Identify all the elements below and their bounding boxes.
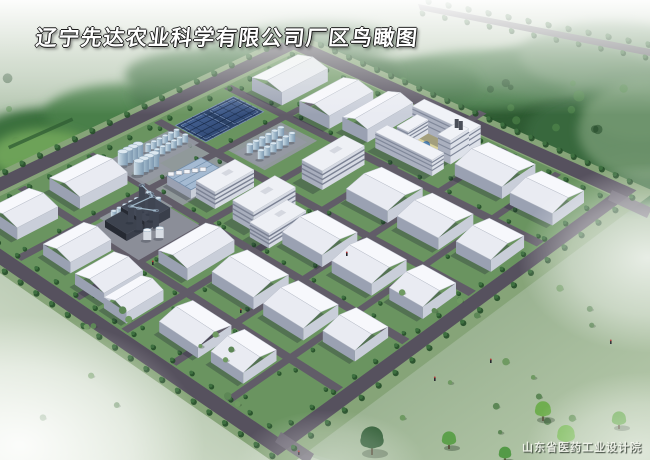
tree-crown (265, 249, 268, 252)
bush (457, 298, 463, 304)
tree-crown (293, 368, 296, 371)
tree-crown (511, 282, 515, 286)
bush (223, 357, 228, 362)
tree-crown (500, 267, 504, 271)
tree-crown (352, 374, 356, 378)
tree-crown (331, 389, 335, 393)
tree-crown (158, 126, 161, 129)
truck (192, 168, 198, 172)
tank-top (270, 142, 276, 145)
tank-top (143, 228, 151, 231)
tree-crown (151, 344, 155, 348)
tree-crown (486, 116, 490, 120)
tree-crown (312, 278, 315, 281)
tree-crown (477, 307, 481, 311)
tree-crown (247, 410, 251, 414)
tank-top (265, 133, 271, 136)
gate-pillar (459, 121, 463, 130)
tree-crown (443, 332, 447, 336)
tree-crown (327, 211, 330, 214)
tank-top (174, 129, 180, 131)
mist-top (0, 0, 650, 115)
tank-top (278, 126, 284, 129)
tree-crown (310, 405, 314, 409)
tank-body (153, 211, 159, 229)
tank-top (276, 139, 282, 142)
tree-crown (460, 319, 464, 323)
tree-crown (17, 279, 21, 283)
person (490, 359, 492, 361)
tree-crown (375, 382, 379, 386)
tank-top (289, 132, 295, 135)
tank-top (118, 149, 128, 153)
bush (448, 380, 452, 384)
tank-top (171, 139, 177, 141)
tree-crown (238, 431, 242, 435)
bush (536, 393, 542, 399)
tree-crown (209, 384, 213, 388)
tree-crown (392, 370, 396, 374)
tank-body (128, 206, 134, 222)
tree-crown (147, 125, 151, 129)
person (240, 309, 242, 311)
tree-crown (15, 253, 19, 257)
tree-crown (49, 301, 53, 305)
person (240, 310, 242, 313)
tank-top (162, 134, 168, 136)
tree-crown (436, 313, 440, 317)
tree-crown (426, 345, 430, 349)
tree-crown (92, 305, 96, 309)
tank-top (145, 143, 151, 145)
bush (502, 358, 509, 365)
gate-pillar (455, 119, 459, 128)
tree-crown (127, 135, 131, 139)
bush (474, 312, 480, 318)
tank-top (134, 159, 144, 163)
tree-crown (542, 141, 546, 145)
tank-top (154, 148, 160, 150)
tank-top (258, 149, 264, 152)
tree-crown (37, 152, 41, 156)
tree-crown (202, 287, 205, 290)
tree-crown (72, 136, 76, 140)
person (152, 261, 154, 263)
truck (200, 167, 206, 171)
tree-crown (161, 189, 164, 192)
tree-crown (222, 420, 226, 424)
tree-crown (27, 184, 31, 188)
tree-crown (456, 291, 459, 294)
tree-crown (556, 147, 560, 151)
tree-crown (54, 279, 58, 283)
tree-crown (194, 156, 197, 159)
tree-crown (167, 115, 171, 119)
tank-top (160, 145, 166, 147)
tree-crown (19, 161, 23, 165)
bush (119, 306, 127, 314)
tank-top (272, 129, 278, 132)
tree-crown (189, 371, 193, 375)
tree-crown (192, 207, 195, 210)
designer-watermark: 山东省医药工业设计院 (522, 439, 642, 455)
tank-top (157, 137, 163, 139)
tree-crown (222, 225, 225, 228)
page-title: 辽宁先达农业科学有限公司厂区鸟瞰图 (34, 22, 420, 52)
tree-crown (324, 387, 327, 390)
tree-crown (394, 343, 398, 347)
person (434, 377, 436, 379)
tank-top (139, 184, 145, 187)
tree-crown (131, 331, 135, 335)
canopy-texture (512, 116, 520, 124)
tank-top (253, 140, 259, 143)
bush (399, 289, 405, 295)
tree-crown (107, 119, 111, 123)
tree-crown (372, 313, 375, 316)
bush (400, 415, 406, 421)
tree-crown (277, 371, 280, 374)
tree-crown (402, 331, 405, 334)
tree-crown (217, 221, 220, 224)
tree-crown (447, 189, 450, 192)
tree-crown (373, 359, 377, 363)
tree-crown (445, 254, 448, 257)
tree-crown (89, 128, 93, 132)
tank-top (259, 136, 265, 139)
tree-crown (172, 290, 175, 293)
person (434, 378, 436, 381)
tree-crown (409, 357, 413, 361)
tree-crown (494, 294, 498, 298)
bush (212, 332, 218, 338)
person (490, 360, 492, 363)
tank-top (151, 140, 157, 142)
tree-crown (546, 169, 550, 173)
tank-top (111, 210, 117, 212)
bush (531, 375, 536, 380)
bush (235, 401, 241, 407)
shadow (134, 230, 142, 233)
tank-top (165, 142, 171, 144)
person (346, 252, 348, 254)
tree-crown (126, 192, 129, 195)
tree-crown (378, 301, 381, 304)
tree-crown (73, 292, 77, 296)
tree-crown (233, 329, 236, 332)
tree-crown (54, 144, 58, 148)
tree-crown (504, 451, 511, 458)
tree-shadow (444, 445, 460, 451)
bush (493, 403, 500, 410)
tree-crown (563, 177, 567, 181)
tree-crown (528, 135, 532, 139)
tree-crown (57, 229, 60, 232)
tree-crown (47, 174, 51, 178)
tree-crown (206, 409, 210, 413)
tank-top (168, 132, 174, 134)
tree-crown (328, 130, 331, 133)
tree-crown (228, 138, 231, 141)
tree-crown (154, 257, 157, 260)
tree-crown (107, 145, 111, 149)
tank-top (264, 145, 270, 148)
tree-crown (500, 122, 504, 126)
rendering-canvas (0, 0, 650, 460)
tank-top (283, 135, 289, 138)
tank-top (156, 226, 164, 229)
bush (125, 316, 132, 323)
truck (176, 171, 182, 175)
tree-crown (217, 159, 220, 162)
tank-top (182, 133, 188, 135)
tree-crown (33, 290, 37, 294)
birdseye-rendering: 辽宁先达农业科学有限公司厂区鸟瞰图 山东省医药工业设计院 (0, 0, 650, 460)
tree-crown (307, 209, 310, 212)
tank-body (136, 208, 142, 230)
tank-top (247, 143, 253, 146)
tree-crown (585, 160, 589, 164)
tree-crown (65, 312, 69, 316)
tree-crown (263, 120, 266, 123)
tree-crown (243, 394, 246, 397)
tree-crown (570, 153, 574, 157)
tree-crown (478, 282, 482, 286)
bush (432, 308, 437, 313)
tree-crown (34, 266, 38, 270)
tree-crown (2, 268, 6, 272)
tree-crown (282, 260, 285, 263)
tank-top (155, 197, 161, 199)
person (152, 262, 154, 265)
tree-crown (514, 129, 518, 133)
tree-crown (359, 395, 363, 399)
bush (198, 344, 202, 348)
tree-crown (507, 219, 510, 222)
tree-crown (477, 204, 480, 207)
shadow (125, 222, 133, 225)
bush (498, 430, 502, 434)
bush (224, 392, 232, 400)
tree-crown (140, 326, 143, 329)
tree-crown (170, 358, 174, 362)
person (346, 253, 348, 256)
truck (168, 172, 174, 176)
canopy-texture (593, 125, 602, 134)
bush (228, 346, 234, 352)
tree-crown (342, 295, 345, 298)
tree-crown (23, 247, 26, 250)
shadow (244, 153, 252, 156)
tree-crown (448, 436, 456, 444)
tree-crown (2, 169, 6, 173)
canopy-texture (552, 124, 560, 132)
tree-crown (311, 348, 314, 351)
truck (184, 170, 190, 174)
tree-crown (7, 194, 11, 198)
tank-top (177, 136, 183, 138)
tree-crown (415, 328, 419, 332)
tree-crown (91, 210, 94, 213)
